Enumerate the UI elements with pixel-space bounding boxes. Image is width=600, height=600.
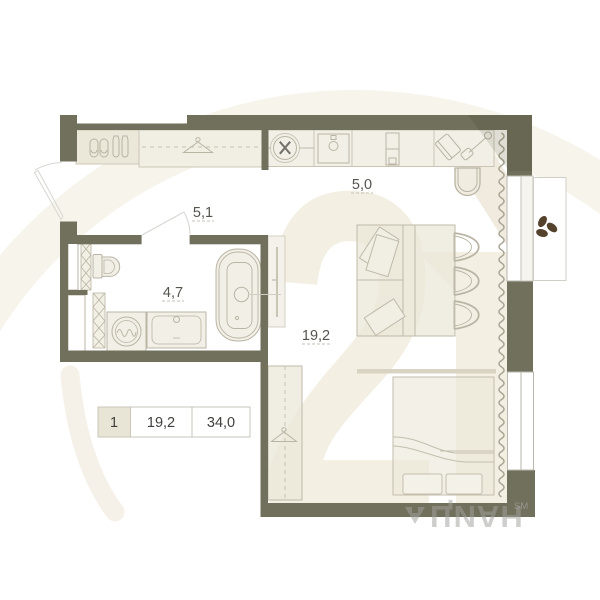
svg-text:4,7: 4,7 [163,285,183,301]
svg-text:ЦИАН: ЦИАН [430,499,524,534]
svg-text:5,1: 5,1 [193,205,213,221]
svg-text:5,0: 5,0 [352,177,372,193]
svg-text:19,2: 19,2 [147,415,175,431]
svg-text:19,2: 19,2 [302,328,330,344]
svg-text:34,0: 34,0 [207,415,235,431]
svg-text:1: 1 [110,415,118,431]
svg-text:2: 2 [258,95,442,600]
svg-text:SM: SM [514,501,528,512]
